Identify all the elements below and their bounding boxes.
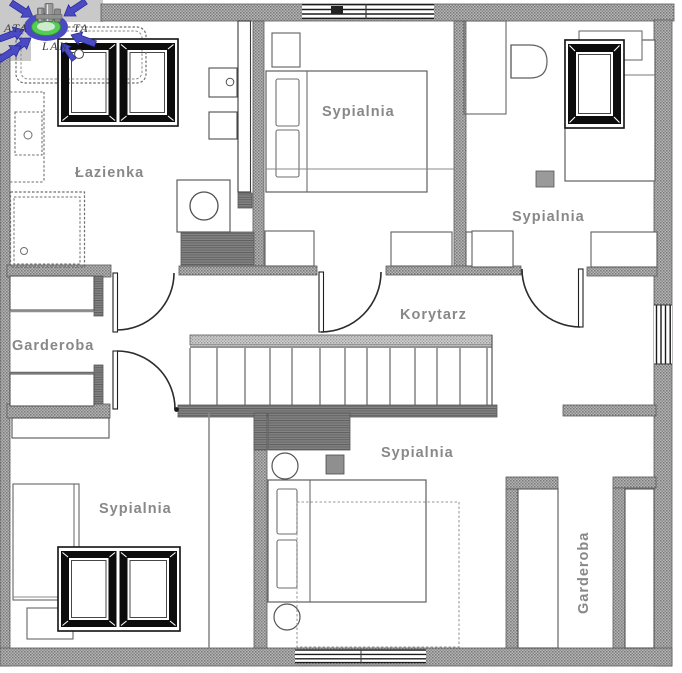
svg-text:LAN: LAN (41, 39, 69, 53)
svg-text:Łazienka: Łazienka (75, 165, 144, 181)
svg-text:Sypialnia: Sypialnia (99, 501, 172, 517)
svg-text:Sypialnia: Sypialnia (322, 104, 395, 120)
svg-text:Garderoba: Garderoba (576, 532, 592, 614)
svg-text:TA: TA (73, 21, 89, 35)
svg-text:Sypialnia: Sypialnia (381, 445, 454, 461)
svg-text:Garderoba: Garderoba (12, 338, 94, 354)
svg-text:Korytarz: Korytarz (400, 307, 467, 323)
svg-text:Sypialnia: Sypialnia (512, 209, 585, 225)
svg-text:ATA: ATA (3, 21, 29, 35)
